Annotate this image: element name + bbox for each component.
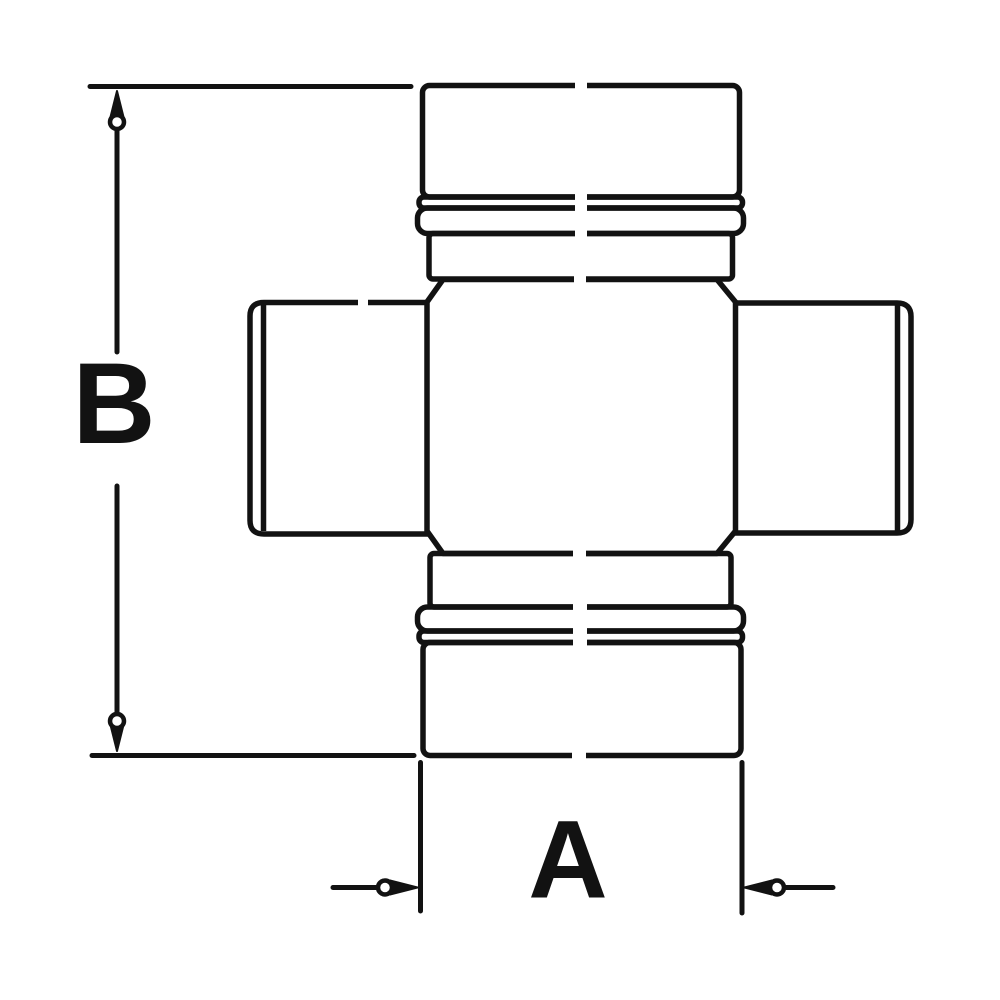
dim-a-arrow-right-icon xyxy=(378,881,418,895)
arrow-dot xyxy=(378,881,392,895)
arrow-dot xyxy=(110,714,124,728)
dim-a-arrow-left-icon xyxy=(745,881,785,895)
top-cap-shoulder xyxy=(429,234,733,280)
dim-b-arrow-down-icon xyxy=(110,714,124,751)
bottom-cap-shoulder xyxy=(430,554,731,608)
dim-a-label: A xyxy=(528,799,607,922)
left-bearing-cup xyxy=(250,303,428,535)
dim-b-arrow-up-icon xyxy=(110,91,124,129)
line-break xyxy=(575,80,587,92)
line-break xyxy=(575,192,587,238)
right-bearing-cup xyxy=(735,303,911,533)
bottom-bearing-cup xyxy=(418,554,744,756)
line-break xyxy=(358,298,368,307)
u-joint-cross-drawing: B A xyxy=(0,0,1000,1000)
line-break xyxy=(573,549,586,559)
top-cap-body xyxy=(423,86,740,198)
bottom-cap-body xyxy=(423,643,741,756)
arrow-dot xyxy=(770,881,784,895)
line-break xyxy=(573,602,587,647)
right-cup-outline xyxy=(735,303,911,533)
line-break xyxy=(572,749,586,760)
arrow-dot xyxy=(110,115,124,129)
dimension-a: A xyxy=(333,763,833,922)
line-break xyxy=(574,275,586,284)
top-bearing-cup xyxy=(418,86,744,280)
center-body-outline xyxy=(427,280,736,554)
dim-b-label: B xyxy=(72,340,155,468)
left-cup-outline xyxy=(250,303,428,535)
dimension-b: B xyxy=(72,87,414,756)
drawing-canvas: B A xyxy=(0,0,1000,1000)
scan-line-breaks xyxy=(358,80,587,760)
